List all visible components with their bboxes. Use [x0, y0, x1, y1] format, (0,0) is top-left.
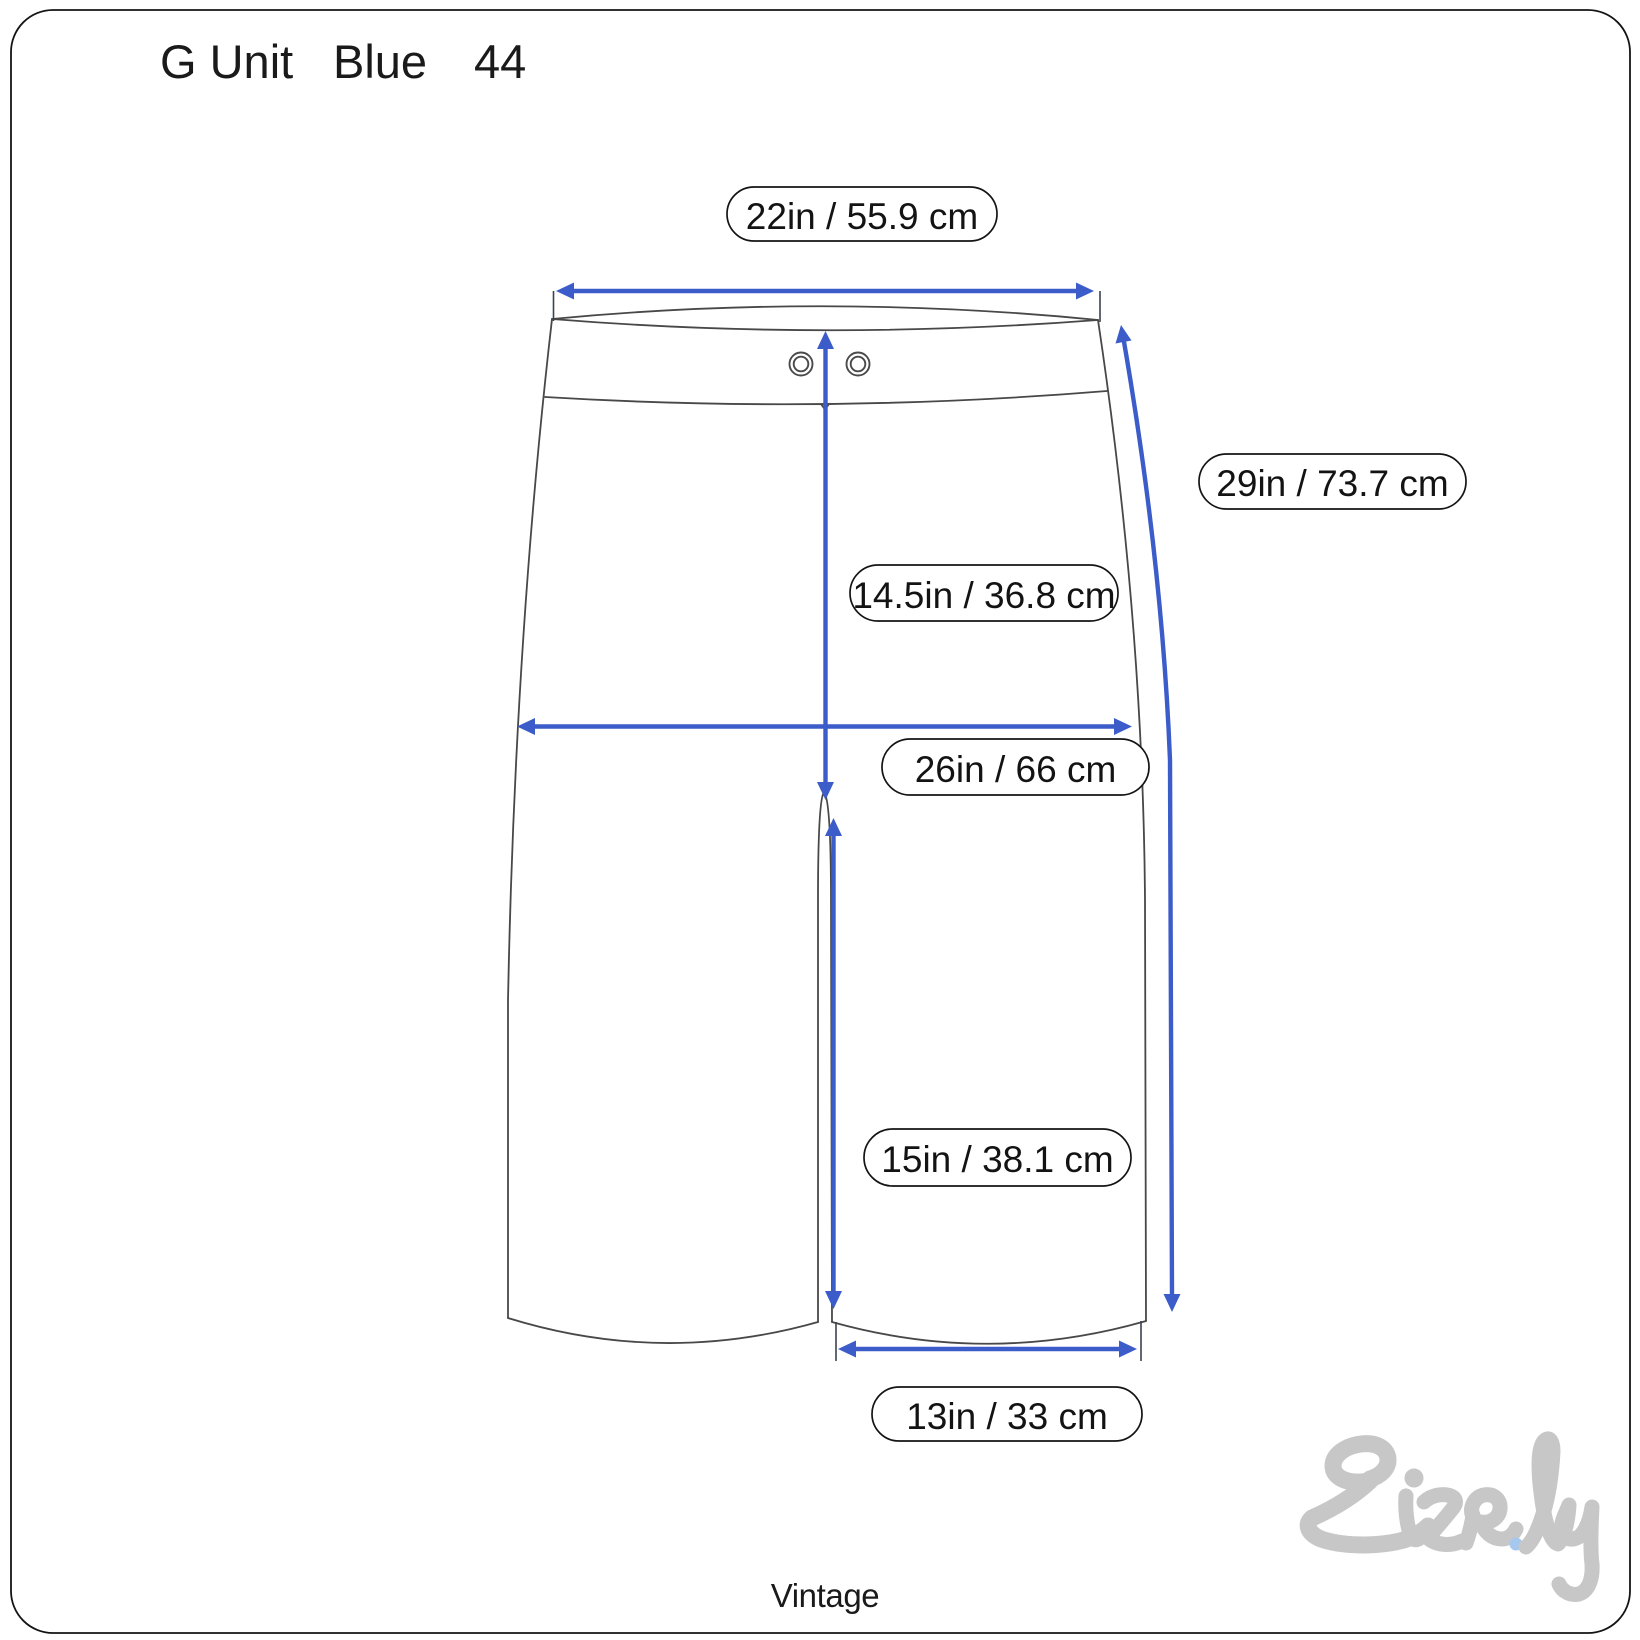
svg-text:G Unit: G Unit — [160, 35, 293, 88]
svg-text:15in / 38.1 cm: 15in / 38.1 cm — [881, 1139, 1113, 1180]
svg-text:44: 44 — [474, 35, 526, 88]
svg-text:13in / 33 cm: 13in / 33 cm — [906, 1396, 1108, 1437]
svg-text:Blue: Blue — [333, 35, 427, 88]
svg-text:Vintage: Vintage — [771, 1577, 880, 1614]
svg-text:29in / 73.7 cm: 29in / 73.7 cm — [1216, 463, 1448, 504]
svg-text:14.5in / 36.8 cm: 14.5in / 36.8 cm — [852, 575, 1115, 616]
svg-text:22in / 55.9 cm: 22in / 55.9 cm — [746, 196, 978, 237]
svg-text:26in / 66 cm: 26in / 66 cm — [915, 749, 1117, 790]
